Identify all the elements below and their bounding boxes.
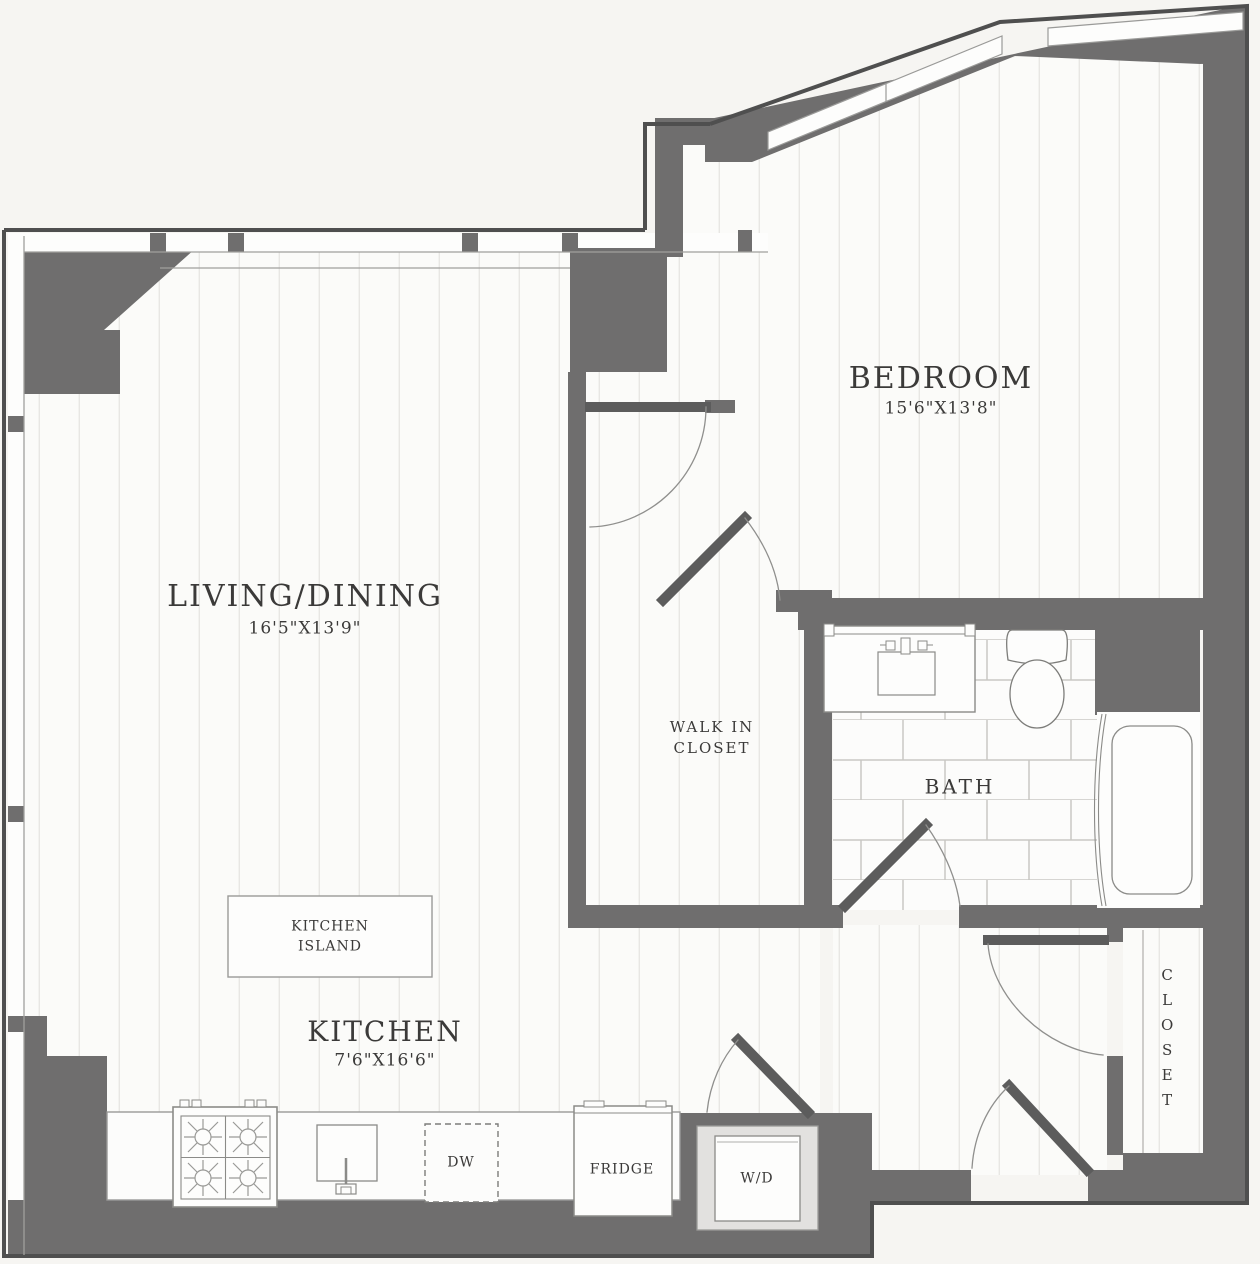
vanity-icon <box>824 624 975 712</box>
fridge-label: FRIDGE <box>590 1161 654 1180</box>
floor-plan: LIVING/DINING 16'5"X13'9" BEDROOM 15'6"X… <box>0 0 1260 1264</box>
walk-in-closet-label-line1: WALK IN <box>670 717 755 737</box>
toilet-icon <box>1007 630 1068 728</box>
washer-dryer-label: W/D <box>740 1170 773 1189</box>
bath-label: BATH <box>925 774 996 801</box>
kitchen-island-label-line1: KITCHEN <box>291 918 369 937</box>
fridge-icon <box>574 1101 672 1216</box>
living-dining-label: LIVING/DINING <box>167 577 443 618</box>
bathtub-icon <box>1095 712 1201 908</box>
floor-plan-drawing <box>0 0 1260 1264</box>
bedroom-dims: 15'6"X13'8" <box>885 398 998 421</box>
kitchen-dims: 7'6"X16'6" <box>334 1050 435 1073</box>
kitchen-island-label-line2: ISLAND <box>298 938 362 957</box>
closet-label: CLOSET <box>1157 966 1177 1116</box>
dishwasher-label: DW <box>447 1154 475 1173</box>
living-dining-dims: 16'5"X13'9" <box>249 618 362 641</box>
bedroom-label: BEDROOM <box>849 359 1034 400</box>
walk-in-closet-label-line2: CLOSET <box>674 738 751 758</box>
kitchen-island-outline <box>228 896 432 977</box>
kitchen-label: KITCHEN <box>307 1013 462 1051</box>
